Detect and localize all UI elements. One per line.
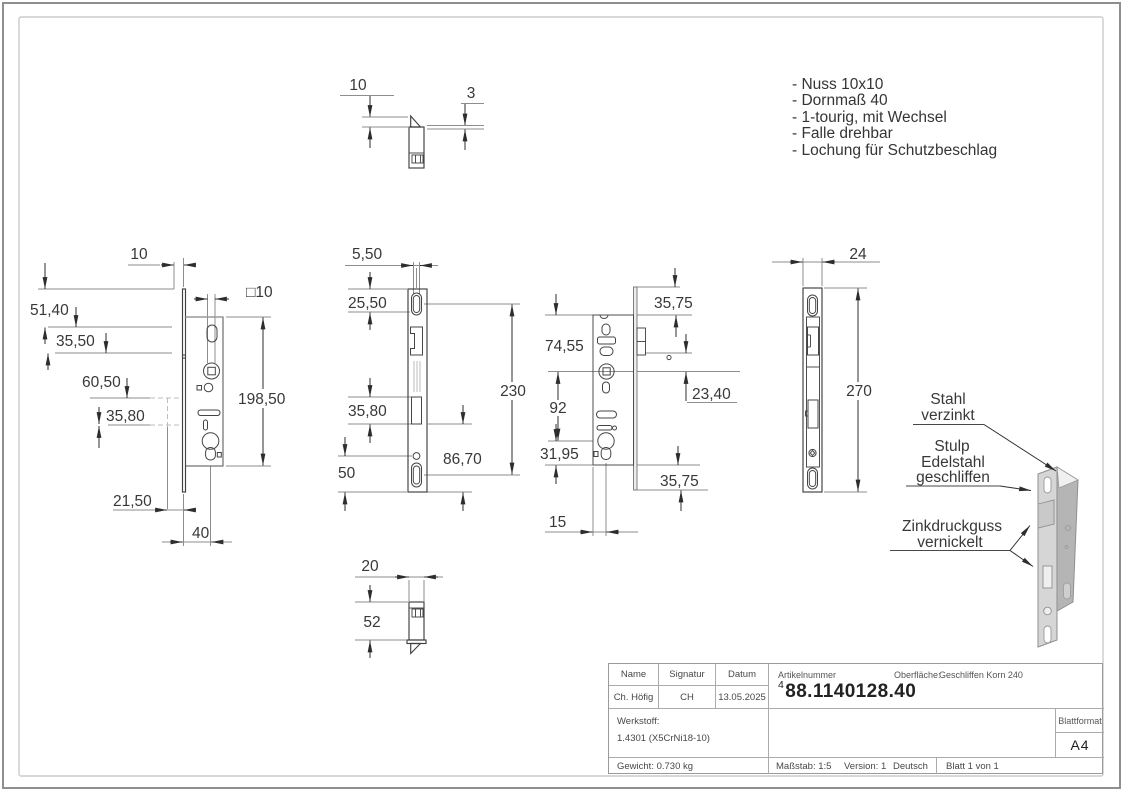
dim-side-offset: 10 xyxy=(130,246,148,263)
article-revision: 4 xyxy=(778,679,784,691)
note-item: - Dornmaß 40 xyxy=(792,93,997,109)
latch-3d xyxy=(1038,500,1054,528)
dim-top-thickness: 3 xyxy=(467,85,476,102)
weight-value: Gewicht: 0.730 kg xyxy=(617,761,693,772)
dim-rear-b: 23,40 xyxy=(692,386,731,403)
name-value: Ch. Höfig xyxy=(609,686,659,709)
version-value: Version: 1 xyxy=(844,761,886,772)
dim-plate-a: 25,50 xyxy=(348,295,387,312)
surface-value: Geschliffen Korn 240 xyxy=(939,670,1023,680)
dim-side-backset: 40 xyxy=(192,525,210,542)
signature-header: Signatur xyxy=(659,664,716,686)
spec-notes: - Nuss 10x10 - Dornmaß 40 - 1-tourig, mi… xyxy=(792,77,997,159)
note-item: - Falle drehbar xyxy=(792,126,997,142)
faceplate-edge-rear xyxy=(634,287,638,490)
title-block: Name Signatur Datum Ch. Höfig CH 13.05.2… xyxy=(608,663,1103,774)
callout-stulp-line3: geschliffen xyxy=(916,469,990,486)
callout-steel-line1: Stahl xyxy=(930,391,965,408)
dim-side-d: 35,80 xyxy=(106,408,145,425)
dim-rear-bottom-offset: 35,75 xyxy=(660,473,699,490)
sheet-value: Blatt 1 von 1 xyxy=(946,761,999,772)
sheet-cell: Blatt 1 von 1 xyxy=(937,758,1103,774)
article-cell: Artikelnummer Oberfläche: Geschliffen Ko… xyxy=(769,664,1104,709)
date-value: 13.05.2025 xyxy=(716,686,769,709)
dim-side-e: 21,50 xyxy=(113,493,152,510)
dim-rear-top-offset: 35,75 xyxy=(654,295,693,312)
dim-rear-e: 15 xyxy=(549,514,566,531)
callout-steel-line2: verzinkt xyxy=(921,407,975,424)
stulp-3d xyxy=(1038,467,1057,647)
dim-plate-c: 50 xyxy=(338,465,356,482)
dim-stulp-height: 270 xyxy=(846,383,872,400)
dim-rear-c: 92 xyxy=(549,400,566,417)
dim-bottom-depth: 52 xyxy=(363,614,380,631)
material-cell: Werkstoff: 1.4301 (X5CrNi18-10) xyxy=(609,709,769,758)
dim-side-case-height: 198,50 xyxy=(238,391,286,408)
dim-rear-a: 74,55 xyxy=(545,338,584,355)
callout-zinc-line2: vernickelt xyxy=(917,534,983,551)
format-value: A4 xyxy=(1056,733,1104,758)
dim-side-c: 60,50 xyxy=(82,374,121,391)
note-item: - Lochung für Schutzbeschlag xyxy=(792,143,997,159)
empty-cell xyxy=(769,709,1056,758)
dim-plate-slot: 5,50 xyxy=(352,246,383,263)
bolt-3d xyxy=(1043,566,1052,588)
callout-zinc-line1: Zinkdruckguss xyxy=(902,518,1002,535)
signature-value: CH xyxy=(659,686,716,709)
scale-cell: Maßstab: 1:5 Version: 1 Deutsch xyxy=(769,758,937,774)
dim-rear-d: 31,95 xyxy=(540,446,579,463)
dim-plate-height: 230 xyxy=(500,383,526,400)
language-value: Deutsch xyxy=(893,761,928,772)
date-header: Datum xyxy=(716,664,769,686)
article-number: 488.1140128.40 xyxy=(778,679,916,703)
note-item: - Nuss 10x10 xyxy=(792,77,997,93)
dim-stulp-width: 24 xyxy=(849,246,867,263)
callout-stulp-line1: Stulp xyxy=(934,438,969,455)
dim-plate-d: 86,70 xyxy=(443,451,482,468)
dim-bottom-width: 20 xyxy=(361,558,379,575)
material-label: Werkstoff: xyxy=(617,716,659,727)
dim-plate-b: 35,80 xyxy=(348,403,387,420)
name-header: Name xyxy=(609,664,659,686)
weight-cell: Gewicht: 0.730 kg xyxy=(609,758,769,774)
dim-side-a: 51,40 xyxy=(30,302,69,319)
dim-side-square-nut: □10 xyxy=(246,284,273,301)
material-value: 1.4301 (X5CrNi18-10) xyxy=(617,733,710,744)
dim-top-gap: 10 xyxy=(349,77,367,94)
format-label: Blattformat xyxy=(1056,709,1104,733)
note-item: - 1-tourig, mit Wechsel xyxy=(792,110,997,126)
scale-value: Maßstab: 1:5 xyxy=(776,761,831,772)
dim-side-b: 35,50 xyxy=(56,333,95,350)
drawing-sheet: 10 3 20 52 xyxy=(0,0,1123,794)
